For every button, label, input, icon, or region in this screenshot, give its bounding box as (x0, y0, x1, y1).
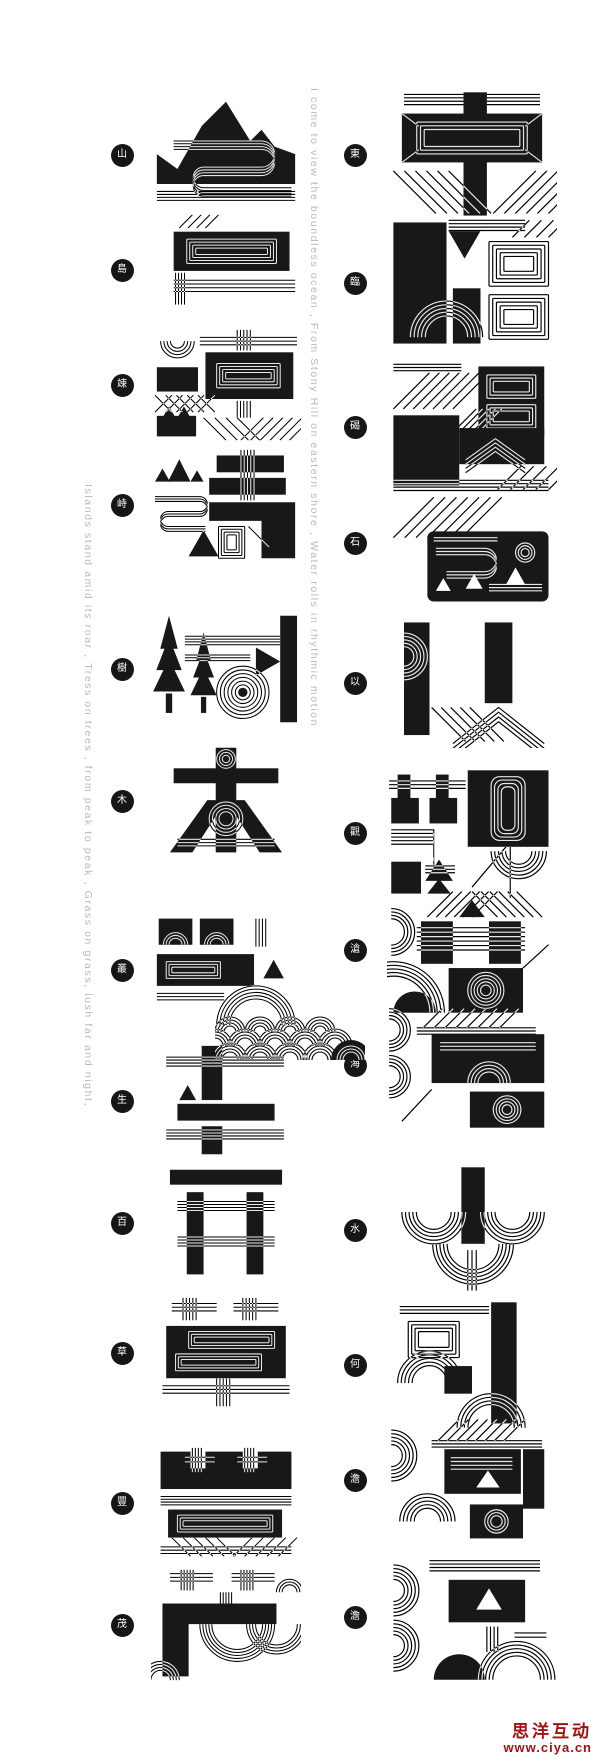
badge-char-left-12: 茂 (111, 1614, 134, 1637)
badge-char-right-1: 東 (344, 144, 367, 167)
glyph-right-5 (387, 618, 557, 748)
poem-translation-line-1: I come to view the boundless ocean , Fro… (308, 88, 320, 727)
badge-char-left-2: 島 (111, 259, 134, 282)
badge-char-left-11: 豐 (111, 1492, 134, 1515)
glyph-right-4 (387, 478, 557, 608)
poem-translation-line-2: Islands stand amid its roar , Tress on t… (82, 484, 94, 1107)
glyph-right-3 (387, 362, 557, 492)
badge-char-left-3: 竦 (111, 374, 134, 397)
glyph-left-10 (151, 1296, 301, 1410)
badge-char-left-7: 叢 (111, 959, 134, 982)
glyph-left-3 (151, 328, 301, 442)
badge-char-left-9: 百 (111, 1212, 134, 1235)
wave-pattern-decoration (215, 988, 365, 1060)
glyph-right-7 (387, 885, 557, 1015)
badge-char-left-4: 峙 (111, 494, 134, 517)
badge-char-left-1: 山 (111, 144, 134, 167)
glyph-left-2 (151, 213, 301, 327)
glyph-left-12 (151, 1568, 301, 1682)
glyph-right-2 (387, 218, 557, 348)
glyph-right-1 (387, 90, 557, 220)
poster-canvas: I come to view the boundless ocean , Fro… (0, 0, 600, 1761)
badge-char-right-3: 碣 (344, 416, 367, 439)
badge-char-left-6: 木 (111, 790, 134, 813)
badge-char-right-12: 澹 (344, 1606, 367, 1629)
badge-char-right-7: 滄 (344, 939, 367, 962)
glyph-right-8 (387, 1000, 557, 1130)
badge-char-left-10: 草 (111, 1342, 134, 1365)
glyph-left-5 (151, 612, 301, 726)
glyph-left-8 (151, 1044, 301, 1158)
badge-char-right-9: 水 (344, 1219, 367, 1242)
badge-char-left-5: 樹 (111, 658, 134, 681)
glyph-right-9 (387, 1165, 557, 1295)
badge-char-right-2: 臨 (344, 272, 367, 295)
glyph-left-9 (151, 1166, 301, 1280)
brand-url: www.ciya.cn (503, 1741, 592, 1756)
glyph-left-4 (151, 448, 301, 562)
glyph-left-1 (151, 98, 301, 212)
brand-name: 思洋互动 (503, 1722, 592, 1742)
glyph-right-6 (387, 768, 557, 898)
footer-watermark: 思洋互动 www.ciya.cn (503, 1722, 592, 1756)
badge-char-right-6: 觀 (344, 822, 367, 845)
glyph-right-12 (387, 1552, 557, 1682)
badge-char-right-11: 澹 (344, 1469, 367, 1492)
badge-char-right-10: 何 (344, 1354, 367, 1377)
glyph-right-10 (387, 1300, 557, 1430)
badge-char-right-5: 以 (344, 672, 367, 695)
glyph-right-11 (387, 1415, 557, 1545)
glyph-left-6 (151, 744, 301, 858)
badge-char-left-8: 生 (111, 1090, 134, 1113)
badge-char-right-4: 石 (344, 532, 367, 555)
glyph-left-11 (151, 1446, 301, 1560)
